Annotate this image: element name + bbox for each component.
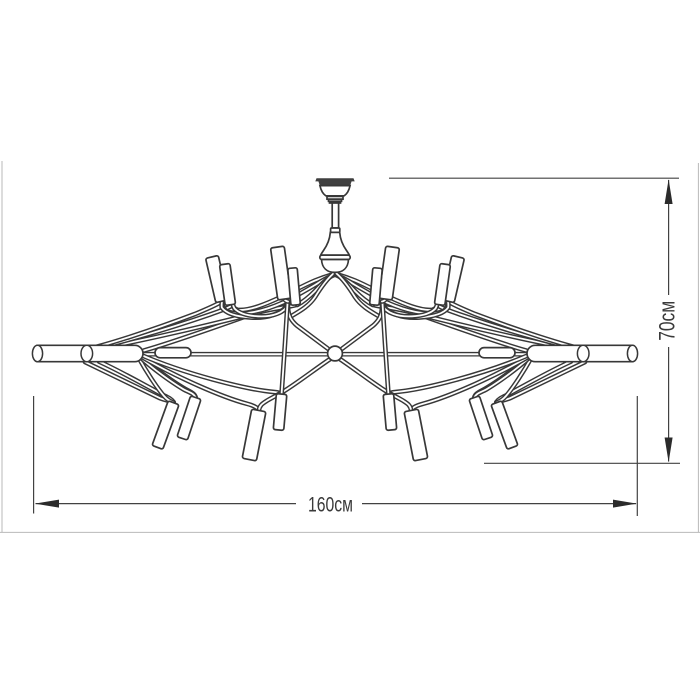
svg-text:70см: 70см bbox=[655, 301, 680, 341]
svg-text:160см: 160см bbox=[308, 493, 353, 516]
